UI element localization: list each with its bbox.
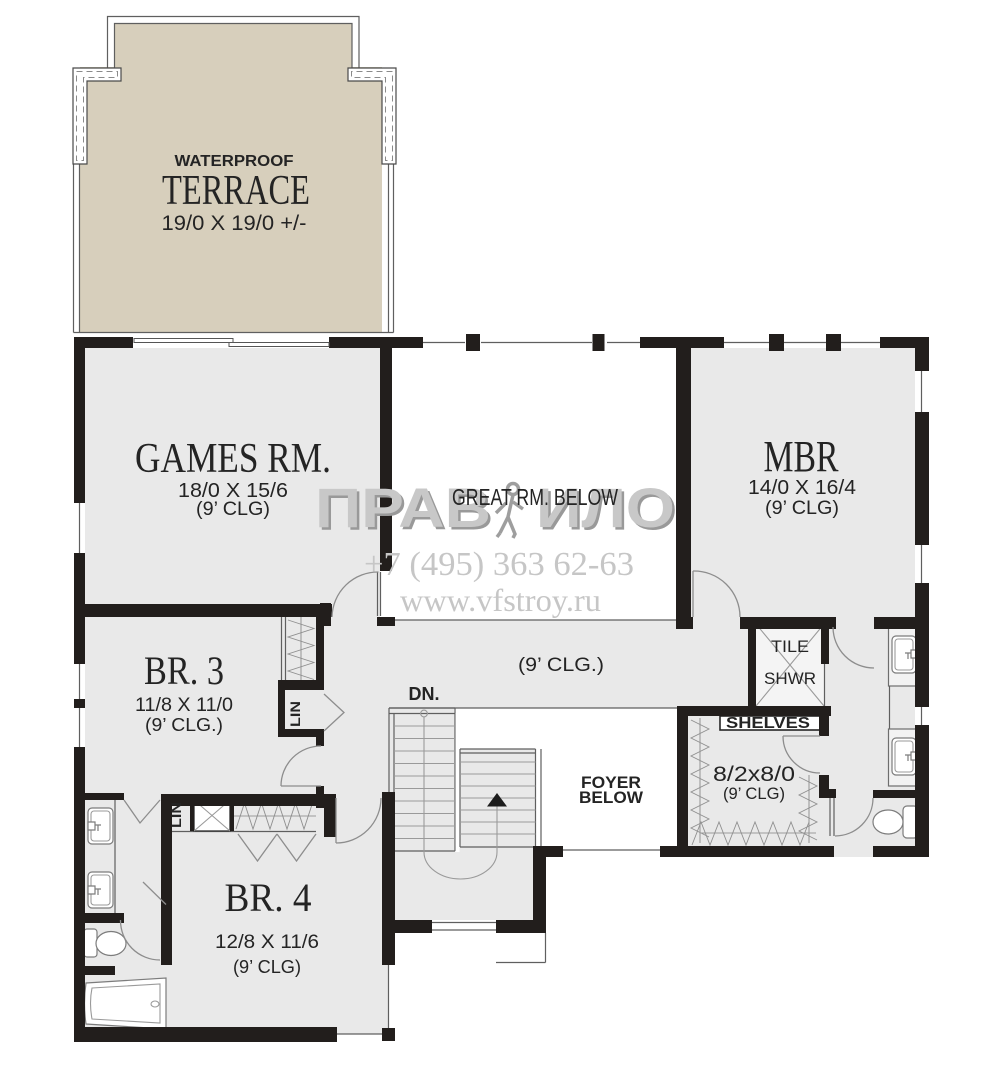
- svg-text:LIN: LIN: [168, 802, 184, 828]
- svg-text:12/8 X 11/6: 12/8 X 11/6: [215, 932, 319, 953]
- svg-text:www.vfstroy.ru: www.vfstroy.ru: [400, 582, 601, 618]
- svg-text:+7 (495) 363 62-63: +7 (495) 363 62-63: [364, 546, 634, 583]
- svg-text:DN.: DN.: [409, 684, 440, 704]
- svg-text:TERRACE: TERRACE: [162, 168, 310, 214]
- svg-text:BR. 4: BR. 4: [225, 875, 312, 920]
- svg-text:GAMES RM.: GAMES RM.: [135, 436, 331, 482]
- svg-text:SHWR: SHWR: [764, 669, 816, 688]
- svg-text:(9’ CLG.): (9’ CLG.): [518, 655, 604, 676]
- svg-text:(9’ CLG): (9’ CLG): [233, 957, 301, 977]
- svg-text:(9’ CLG): (9’ CLG): [196, 499, 270, 520]
- svg-text:11/8 X 11/0: 11/8 X 11/0: [135, 695, 233, 716]
- svg-text:MBR: MBR: [764, 432, 839, 481]
- svg-text:(9’ CLG.): (9’ CLG.): [145, 715, 223, 735]
- svg-text:BELOW: BELOW: [579, 789, 643, 807]
- svg-text:8/2x8/0: 8/2x8/0: [713, 763, 795, 786]
- svg-text:LIN: LIN: [287, 701, 303, 727]
- svg-text:19/0 X 19/0 +/-: 19/0 X 19/0 +/-: [162, 212, 307, 235]
- svg-text:(9’ CLG): (9’ CLG): [723, 784, 785, 803]
- svg-text:GREAT RM. BELOW: GREAT RM. BELOW: [452, 484, 618, 510]
- svg-text:(9’ CLG): (9’ CLG): [765, 498, 839, 519]
- svg-text:SHELVES: SHELVES: [726, 715, 810, 732]
- svg-text:14/0 X 16/4: 14/0 X 16/4: [748, 477, 856, 499]
- svg-text:BR. 3: BR. 3: [144, 648, 224, 693]
- svg-text:TILE: TILE: [771, 637, 809, 656]
